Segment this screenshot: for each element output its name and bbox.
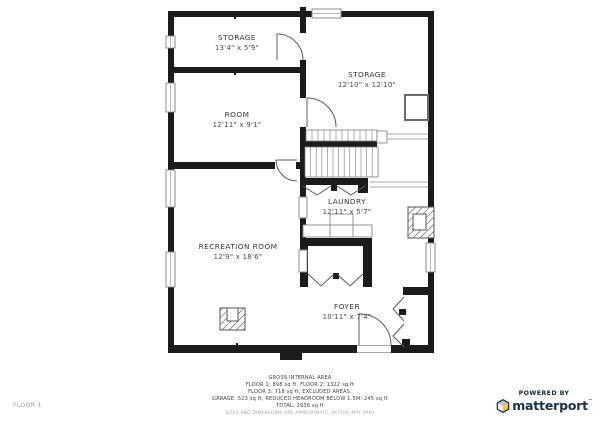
area-floor1-floor2: FLOOR 1: 898 sq ft, FLOOR 2: 1322 sq ft (0, 382, 600, 389)
dims-storage1: 13'4" x 5'9" (215, 44, 259, 52)
dims-room: 12'11" x 9'1" (213, 121, 262, 129)
dims-laundry: 12'11" x 5'7" (323, 208, 372, 216)
label-storage1: STORAGE (218, 33, 256, 42)
chimney-storage (405, 95, 428, 120)
chimney-laundry (408, 207, 434, 238)
opening-rec-closet (299, 250, 307, 272)
powered-by-text: POWERED BY (496, 390, 592, 397)
dims-foyer: 10'11" x 7'4" (323, 313, 372, 321)
staircase (305, 130, 387, 177)
area-summary-title: GROSS INTERNAL AREA (0, 375, 600, 382)
dims-storage2: 12'10" x 12'10" (338, 81, 396, 89)
label-rec-room: RECREATION ROOM (199, 242, 278, 251)
opening-rec-laundry (299, 197, 307, 218)
label-room: ROOM (225, 110, 250, 119)
matterport-wordmark: matterport™ (512, 398, 592, 413)
label-laundry: LAUNDRY (328, 197, 366, 206)
matterport-logo-icon (496, 399, 510, 413)
fireplace-rec-room (220, 308, 245, 330)
dims-rec-room: 12'9" x 18'6" (214, 253, 263, 261)
floorplan-drawing: STORAGE 13'4" x 5'9" STORAGE 12'10" x 12… (0, 0, 600, 424)
laundry-counter (303, 214, 372, 237)
floor-label: FLOOR 1 (13, 402, 42, 409)
matterport-branding: POWERED BY matterport™ (496, 390, 592, 413)
label-storage2: STORAGE (348, 70, 386, 79)
floorplan-page: STORAGE 13'4" x 5'9" STORAGE 12'10" x 12… (0, 0, 600, 424)
label-foyer: FOYER (334, 302, 360, 311)
